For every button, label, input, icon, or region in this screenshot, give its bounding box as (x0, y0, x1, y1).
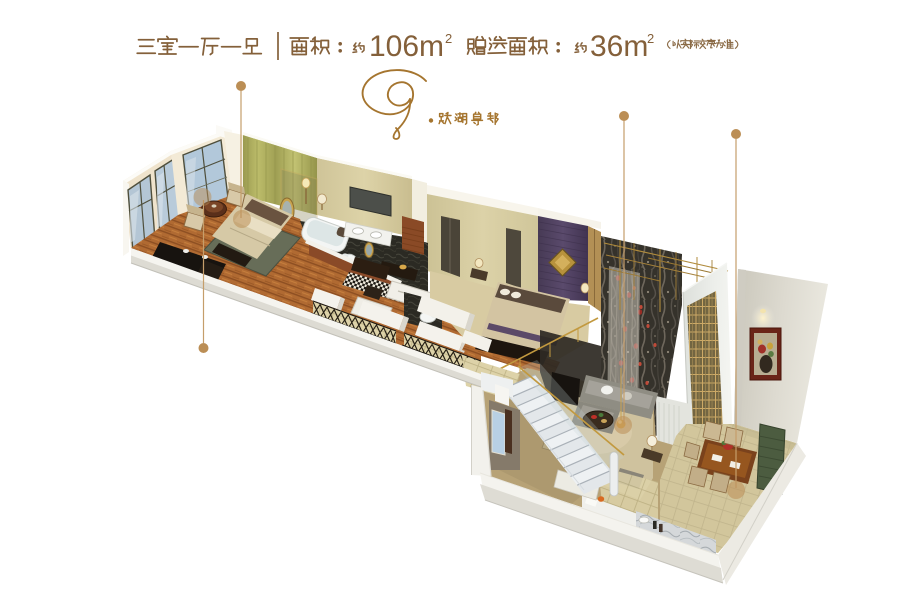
svg-text:36m: 36m (590, 30, 648, 63)
svg-text:2: 2 (445, 31, 452, 46)
svg-text:2: 2 (647, 31, 654, 46)
svg-text:106m: 106m (369, 30, 444, 63)
